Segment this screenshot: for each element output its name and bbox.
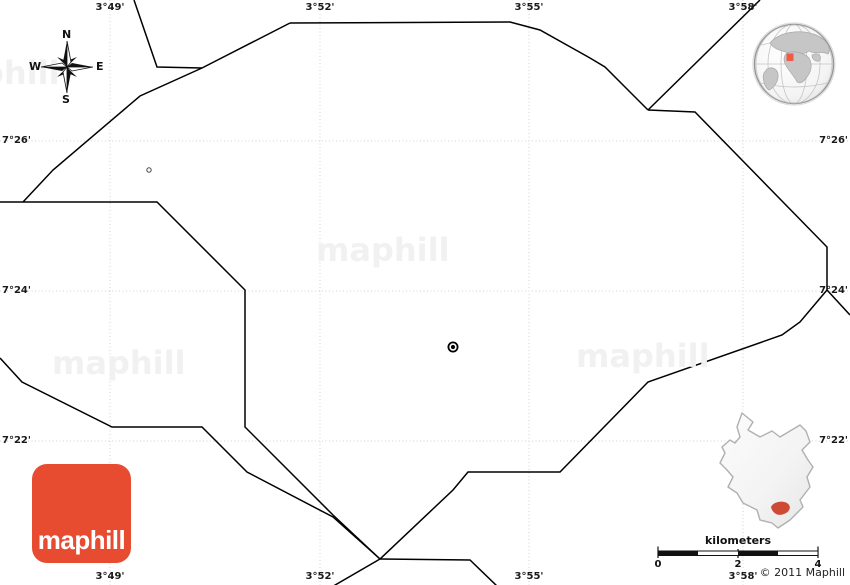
place-marker-dot — [451, 345, 455, 349]
compass-north-label: N — [62, 28, 71, 41]
place-marker-ring — [147, 168, 151, 172]
parallel-label-left: 7°26' — [2, 135, 31, 147]
boundary-line — [380, 559, 498, 585]
locator-globe — [752, 22, 836, 106]
meridian-label-top: 3°58' — [729, 2, 758, 14]
copyright-text: © 2011 Maphill — [650, 566, 845, 579]
watermark-text: maphill — [52, 348, 186, 378]
compass-rose: N W E S — [30, 27, 104, 107]
meridian-label-bottom: 3°52' — [306, 571, 335, 583]
region-outline-icon — [710, 408, 820, 540]
region-inset-map — [710, 408, 820, 540]
parallel-label-right: 7°22' — [819, 435, 848, 447]
maphill-logo-text: maphill — [32, 525, 131, 556]
compass-east-label: E — [96, 60, 104, 73]
compass-west-label: W — [29, 60, 41, 73]
meridian-label-bottom: 3°55' — [515, 571, 544, 583]
meridian-label-top: 3°52' — [306, 2, 335, 14]
boundary-line — [648, 110, 827, 290]
boundary-line — [134, 0, 202, 68]
meridian-label-bottom: 3°49' — [96, 571, 125, 583]
boundary-line — [648, 0, 760, 110]
globe-icon — [752, 22, 836, 106]
meridian-label-top: 3°55' — [515, 2, 544, 14]
watermark-text: maphill — [316, 235, 450, 265]
map-canvas: 3°49'3°49'3°52'3°52'3°55'3°55'3°58'3°58'… — [0, 0, 850, 585]
parallel-label-right: 7°24' — [819, 285, 848, 297]
parallel-label-right: 7°26' — [819, 135, 848, 147]
maphill-logo: maphill — [32, 464, 131, 563]
compass-south-label: S — [62, 93, 70, 106]
parallel-label-left: 7°24' — [2, 285, 31, 297]
parallel-label-left: 7°22' — [2, 435, 31, 447]
globe-location-marker — [787, 54, 794, 62]
boundary-line — [330, 559, 380, 585]
boundary-line — [290, 22, 648, 110]
meridian-label-top: 3°49' — [96, 2, 125, 14]
watermark-text: maphill — [576, 341, 710, 371]
